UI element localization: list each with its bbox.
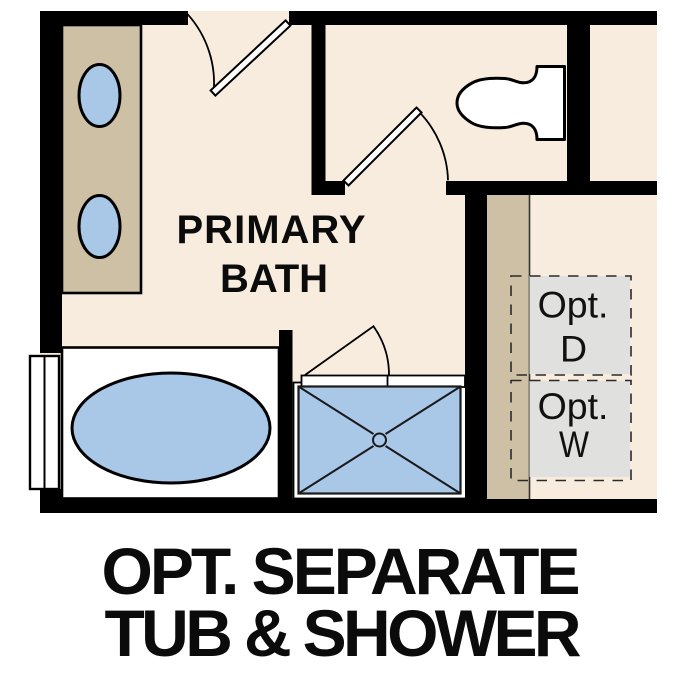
svg-text:Opt.: Opt. [538,385,609,427]
svg-text:TUB & SHOWER: TUB & SHOWER [105,596,582,670]
svg-text:PRIMARY: PRIMARY [177,208,366,252]
svg-text:D: D [560,327,587,369]
svg-text:Opt.: Opt. [538,284,609,326]
svg-text:W: W [559,423,590,465]
svg-text:BATH: BATH [220,257,328,301]
